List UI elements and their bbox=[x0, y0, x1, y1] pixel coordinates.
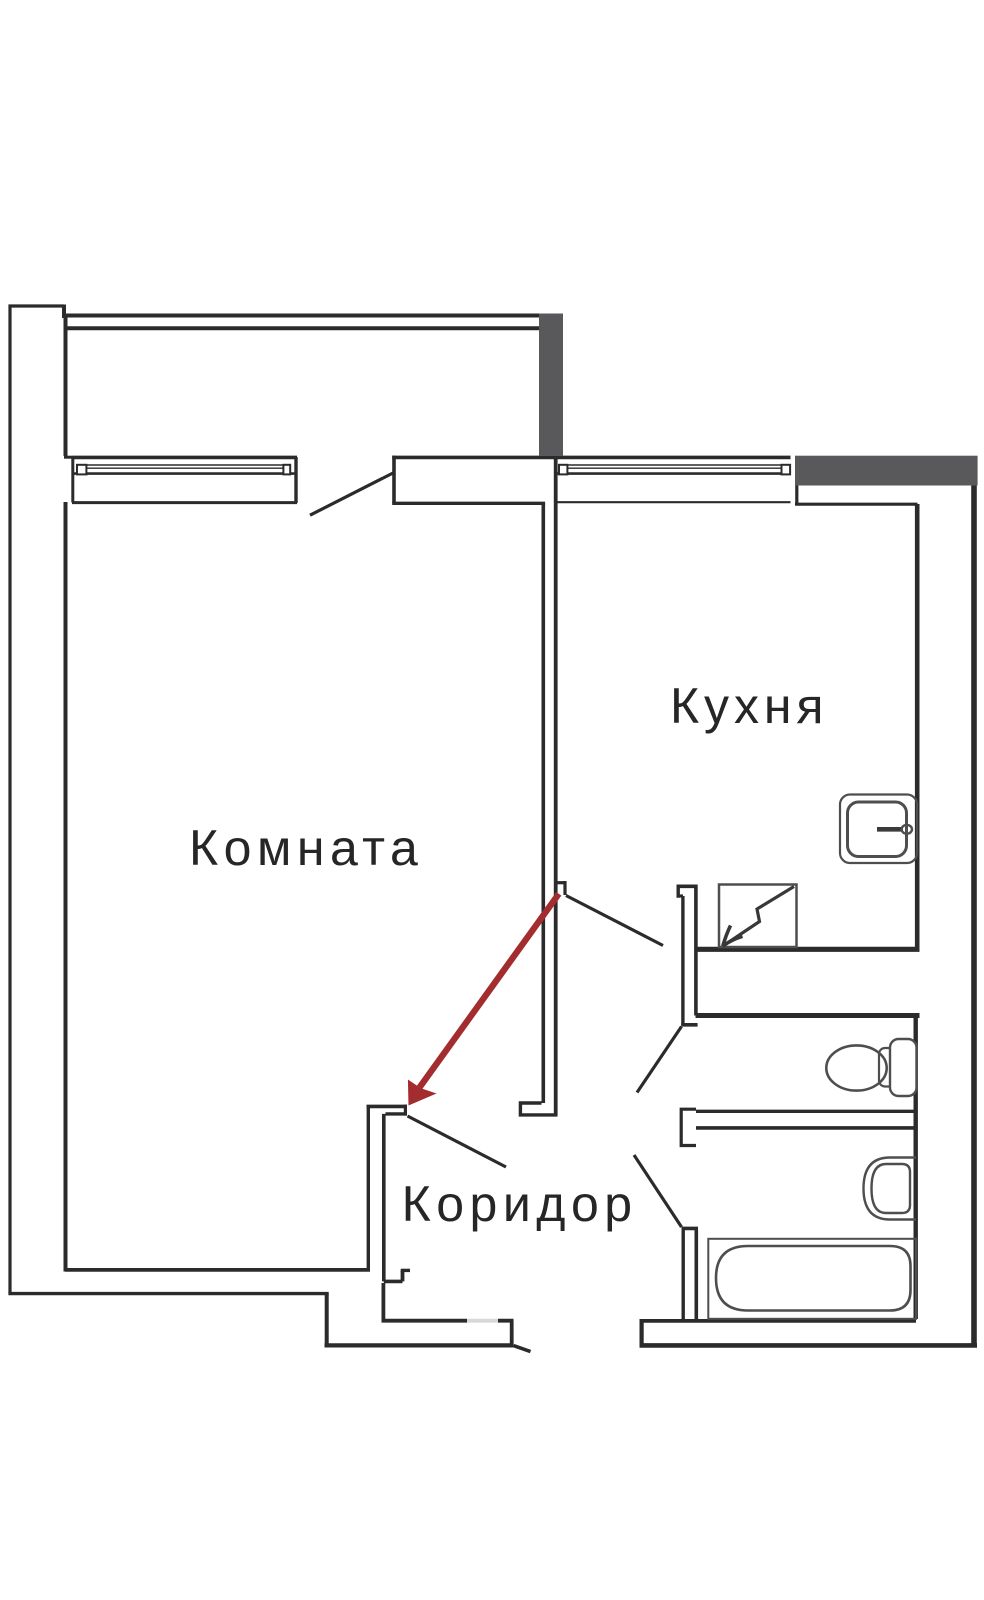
svg-text:Коридор: Коридор bbox=[402, 1176, 638, 1232]
svg-text:Кухня: Кухня bbox=[670, 678, 828, 734]
svg-text:Комната: Комната bbox=[189, 820, 423, 876]
